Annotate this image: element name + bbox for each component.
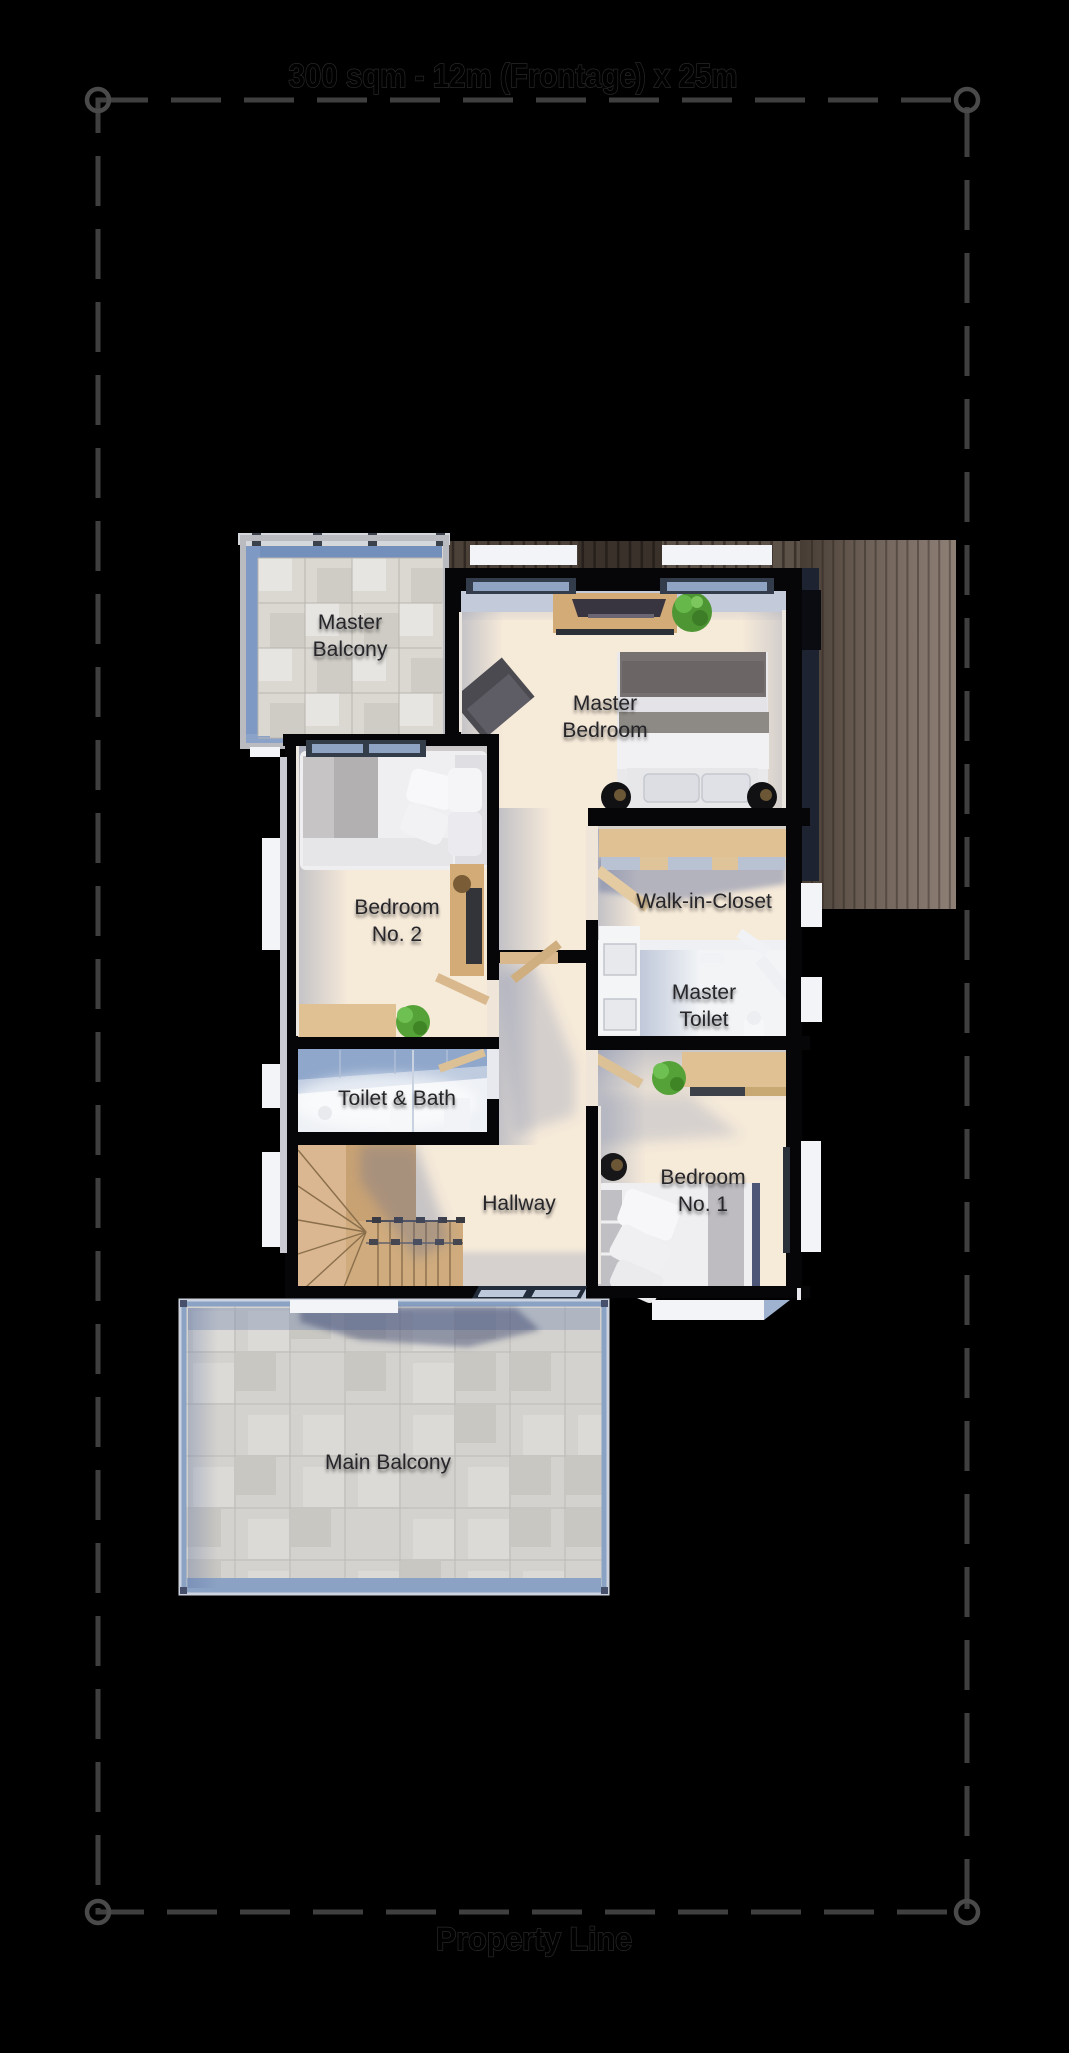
svg-text:Walk-in-Closet: Walk-in-Closet [636, 890, 772, 913]
svg-text:Property Line: Property Line [436, 1921, 632, 1957]
svg-text:Master: Master [672, 981, 736, 1004]
svg-text:300 sqm - 12m (Frontage) x 25m: 300 sqm - 12m (Frontage) x 25m [289, 57, 738, 94]
svg-text:Hallway: Hallway [482, 1192, 556, 1215]
svg-text:No. 2: No. 2 [372, 923, 422, 946]
svg-text:Toilet: Toilet [679, 1008, 728, 1031]
svg-text:No. 1: No. 1 [678, 1193, 728, 1216]
svg-text:Main Balcony: Main Balcony [325, 1451, 452, 1474]
svg-text:Bedroom: Bedroom [354, 896, 439, 919]
svg-text:Master: Master [318, 611, 382, 634]
svg-text:Bedroom: Bedroom [562, 719, 647, 742]
svg-text:Bedroom: Bedroom [660, 1166, 745, 1189]
svg-text:Balcony: Balcony [313, 638, 388, 661]
svg-text:Toilet & Bath: Toilet & Bath [338, 1087, 456, 1110]
svg-text:Master: Master [573, 692, 637, 715]
